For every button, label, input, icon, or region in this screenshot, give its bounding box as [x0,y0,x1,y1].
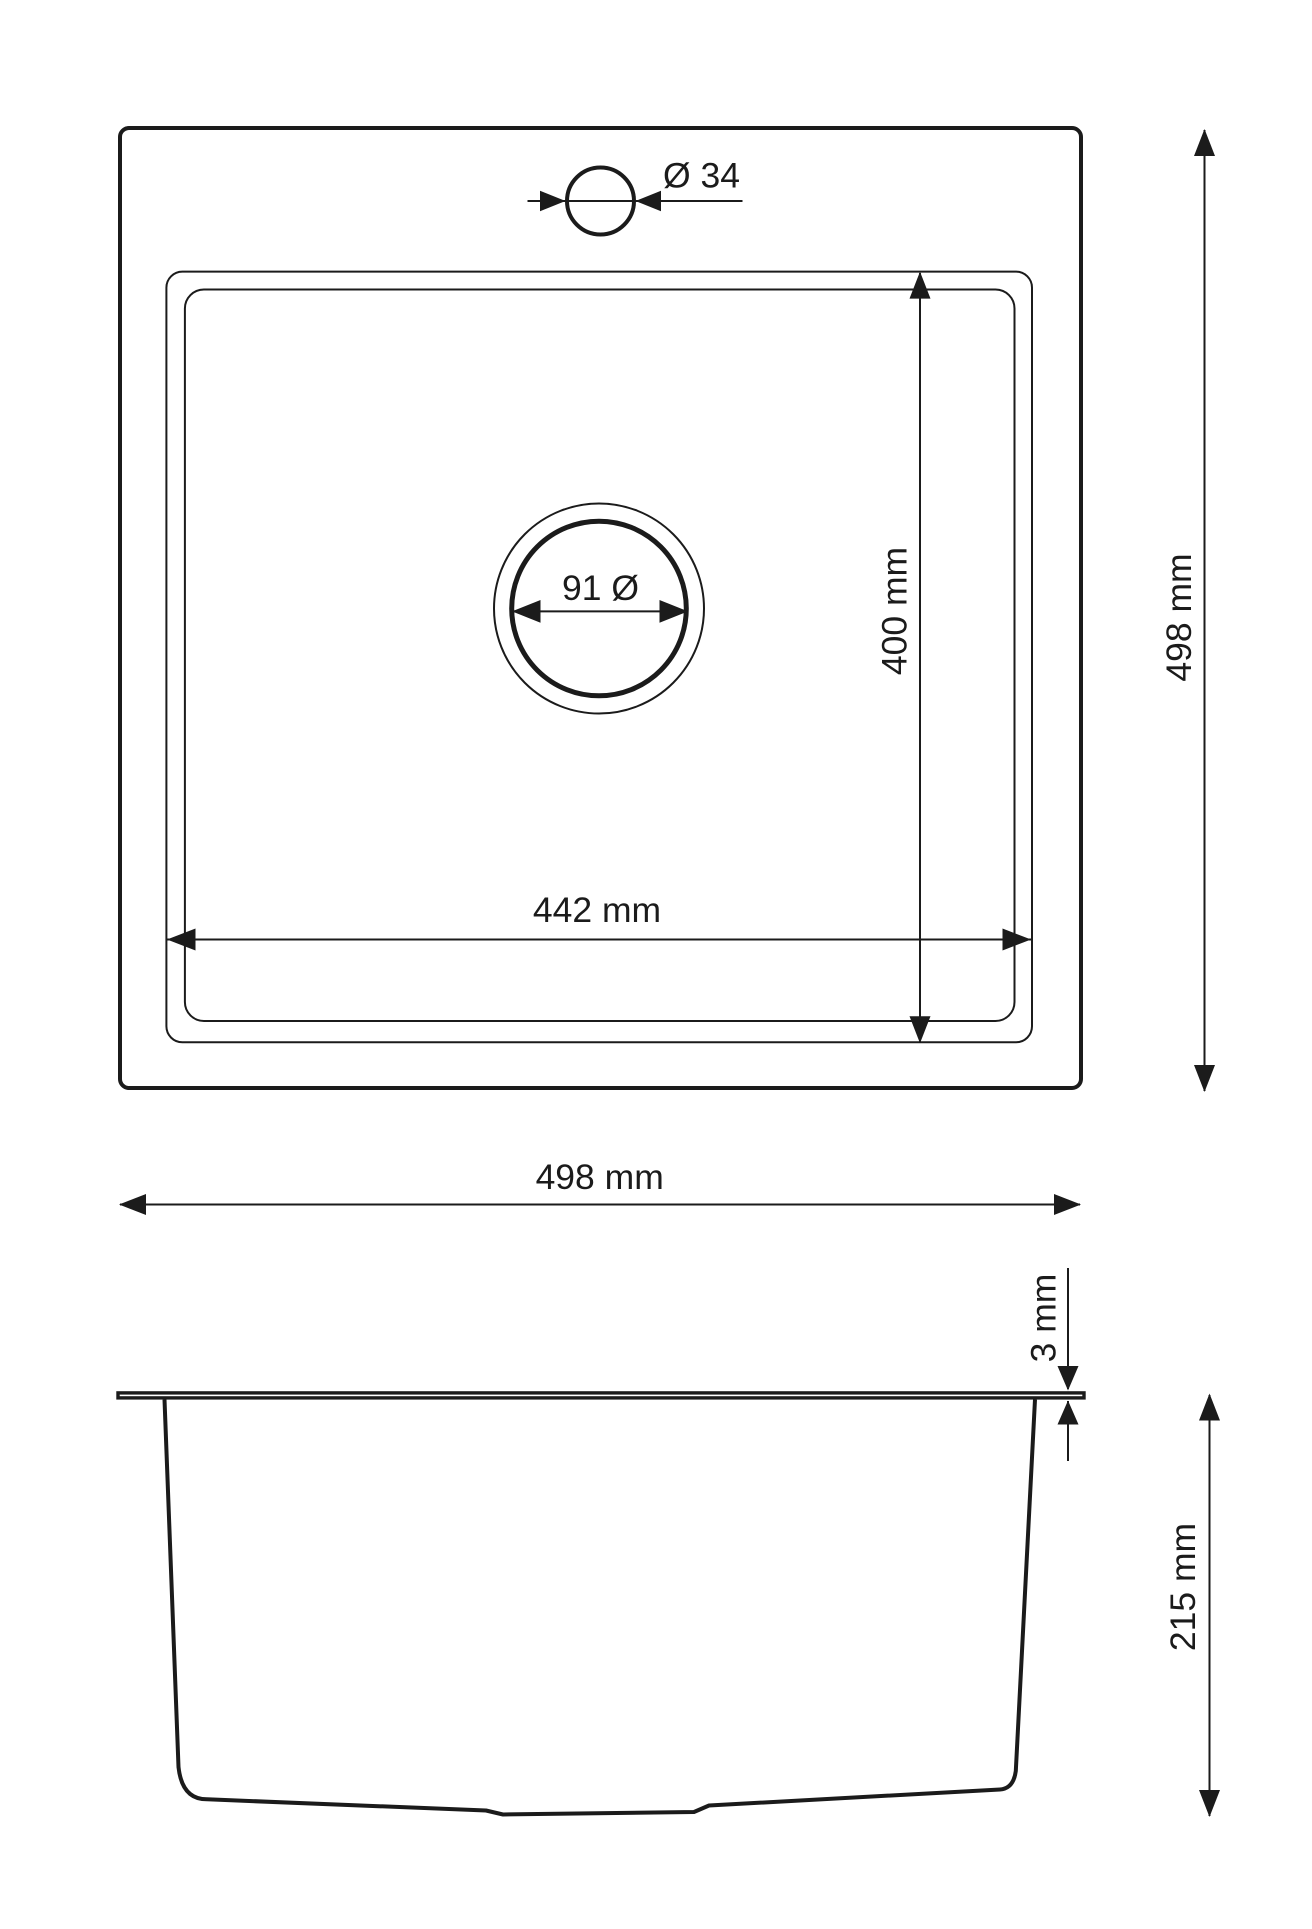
svg-text:Ø 34: Ø 34 [663,156,740,196]
svg-text:215 mm: 215 mm [1163,1523,1203,1651]
svg-text:498 mm: 498 mm [1159,553,1199,681]
svg-text:400 mm: 400 mm [875,547,915,675]
svg-text:91 Ø: 91 Ø [562,568,639,608]
svg-text:498 mm: 498 mm [536,1157,664,1197]
svg-text:3 mm: 3 mm [1024,1274,1064,1363]
svg-text:442 mm: 442 mm [533,890,661,930]
